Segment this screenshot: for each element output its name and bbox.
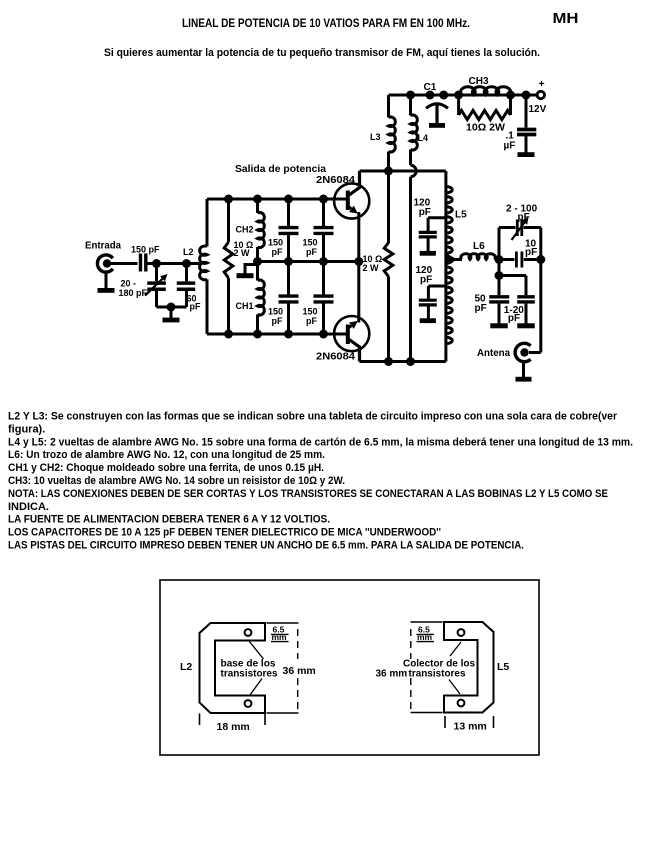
svg-text:L2: L2 bbox=[183, 247, 194, 257]
svg-text:36 mm: 36 mm bbox=[283, 665, 316, 677]
svg-text:mm: mm bbox=[272, 632, 288, 642]
svg-text:2N6084: 2N6084 bbox=[316, 352, 355, 363]
svg-text:13 mm: 13 mm bbox=[454, 721, 487, 733]
svg-text:pF: pF bbox=[508, 313, 520, 324]
svg-text:L4 y L5: 2 vueltas de alambre: L4 y L5: 2 vueltas de alambre AWG No. 15… bbox=[8, 436, 633, 448]
svg-text:150: 150 bbox=[268, 307, 283, 317]
svg-text:L5: L5 bbox=[455, 210, 467, 221]
svg-text:CH3: 10 vueltas de alambre AWG: CH3: 10 vueltas de alambre AWG No. 14 so… bbox=[8, 475, 345, 487]
svg-text:µF: µF bbox=[504, 141, 516, 152]
svg-text:pF: pF bbox=[420, 275, 432, 286]
svg-text:L6: Un trozo de alambre AWG No: L6: Un trozo de alambre AWG No. 12, con … bbox=[8, 449, 325, 461]
svg-text:LAS PISTAS DEL CIRCUITO IMPRES: LAS PISTAS DEL CIRCUITO IMPRESO DEBEN TE… bbox=[8, 540, 524, 552]
svg-text:18 mm: 18 mm bbox=[217, 721, 250, 733]
svg-text:pF: pF bbox=[306, 316, 317, 326]
svg-text:CH2: CH2 bbox=[236, 225, 254, 235]
svg-text:pF: pF bbox=[272, 316, 283, 326]
svg-text:2 W: 2 W bbox=[234, 248, 251, 258]
svg-text:LINEAL DE POTENCIA DE 10 VATIO: LINEAL DE POTENCIA DE 10 VATIOS PARA FM … bbox=[182, 16, 470, 30]
svg-text:L2 Y L3: Se construyen con las: L2 Y L3: Se construyen con las formas qu… bbox=[8, 411, 618, 423]
svg-text:pF: pF bbox=[306, 247, 317, 257]
svg-text:2 W: 2 W bbox=[363, 263, 380, 273]
svg-text:L6: L6 bbox=[473, 241, 485, 252]
svg-text:10Ω 2W: 10Ω 2W bbox=[466, 123, 506, 134]
svg-text:Antena: Antena bbox=[477, 348, 510, 359]
svg-text:Si quieres aumentar la potenci: Si quieres aumentar la potencia de tu pe… bbox=[104, 47, 540, 59]
svg-text:Salida de potencia: Salida de potencia bbox=[235, 164, 326, 175]
svg-text:transistores: transistores bbox=[409, 669, 466, 680]
svg-text:LA FUENTE DE ALIMENTACION DEBE: LA FUENTE DE ALIMENTACION DEBERA TENER 6… bbox=[8, 514, 330, 526]
svg-text:150: 150 bbox=[303, 238, 318, 248]
svg-text:CH1 y CH2: Choque moldeado sob: CH1 y CH2: Choque moldeado sobre una fer… bbox=[8, 462, 324, 474]
svg-text:MH: MH bbox=[553, 10, 579, 27]
svg-text:figura).: figura). bbox=[8, 423, 45, 435]
svg-text:L2: L2 bbox=[180, 661, 192, 673]
svg-text:pF: pF bbox=[190, 302, 201, 312]
svg-text:150: 150 bbox=[268, 238, 283, 248]
svg-text:180 pF: 180 pF bbox=[119, 288, 148, 298]
svg-text:pF: pF bbox=[525, 247, 537, 258]
svg-text:LOS CAPACITORES DE 10 A 125 pF: LOS CAPACITORES DE 10 A 125 pF DEBEN TEN… bbox=[8, 527, 441, 539]
svg-text:12V: 12V bbox=[529, 104, 547, 115]
svg-text:CH1: CH1 bbox=[236, 301, 254, 311]
svg-text:36 mm: 36 mm bbox=[376, 669, 408, 680]
svg-text:NOTA: LAS CONEXIONES DEBEN DE: NOTA: LAS CONEXIONES DEBEN DE SER CORTAS… bbox=[8, 488, 608, 500]
svg-text:L3: L3 bbox=[370, 132, 381, 142]
svg-text:L5: L5 bbox=[497, 661, 509, 673]
svg-text:INDICA.: INDICA. bbox=[8, 501, 49, 513]
svg-text:transistores: transistores bbox=[221, 669, 278, 680]
svg-text:mm: mm bbox=[417, 632, 433, 642]
svg-text:+: + bbox=[539, 78, 545, 90]
svg-text:pF: pF bbox=[272, 247, 283, 257]
svg-text:Entrada: Entrada bbox=[85, 241, 121, 252]
svg-text:L4: L4 bbox=[418, 133, 429, 143]
svg-text:pF: pF bbox=[475, 303, 487, 314]
svg-text:20 -: 20 - bbox=[121, 279, 137, 289]
svg-text:150: 150 bbox=[303, 307, 318, 317]
svg-text:150 pF: 150 pF bbox=[131, 245, 160, 255]
